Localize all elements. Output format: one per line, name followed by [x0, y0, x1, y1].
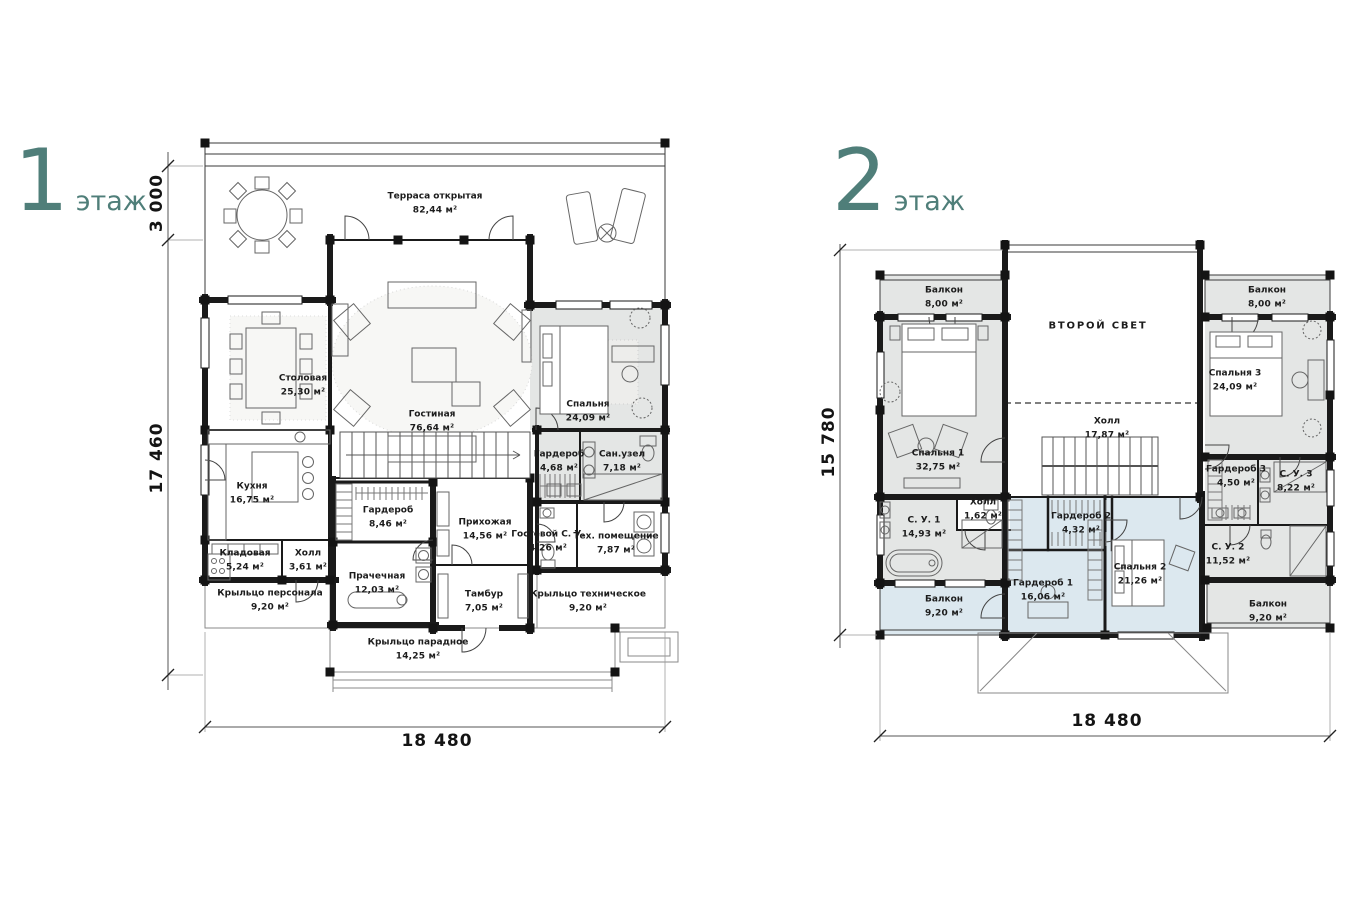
room-name: Балкон [1248, 285, 1286, 299]
room-label-wardrobe2: Гардероб 24,32 м² [1051, 511, 1111, 538]
room-label-vestibule: Тамбур7,05 м² [465, 589, 503, 616]
room-area: 7,18 м² [599, 462, 645, 476]
f2-porch-roof [978, 633, 1228, 693]
f2-stairs [1042, 437, 1158, 495]
room-label-bathroom1: С. У. 114,93 м² [902, 515, 947, 542]
f1-dim-terrace-depth: 3 000 [147, 174, 167, 232]
room-label-hall-main: Холл17,87 м² [1085, 416, 1130, 443]
room-area: 7,87 м² [573, 544, 658, 558]
room-label-balcony-br: Балкон9,20 м² [1249, 599, 1287, 626]
room-name: Спальня 1 [912, 448, 965, 462]
room-area: 4,32 м² [1051, 524, 1111, 538]
room-label-bedroom2: Спальня 221,26 м² [1114, 562, 1167, 589]
floorplan-drawing [0, 0, 1360, 900]
room-area: 16,75 м² [230, 494, 275, 508]
room-area: 12,03 м² [349, 584, 406, 598]
room-label-laundry: Прачечная12,03 м² [349, 571, 406, 598]
room-area: 76,64 м² [409, 422, 456, 436]
floorplan-sheet: 1 этаж 2 этаж 3 000 17 460 18 480 15 780… [0, 0, 1360, 900]
f1-dim-width: 18 480 [401, 731, 472, 751]
room-area: 16,06 м² [1013, 591, 1073, 605]
f2-dim-width: 18 480 [1071, 711, 1142, 731]
room-area: 14,93 м² [902, 528, 947, 542]
room-label-terrace: Терраса открытая82,44 м² [388, 191, 483, 218]
room-name: Гардероб 2 [1051, 511, 1111, 525]
room-label-wardrobe1: Гардероб 116,06 м² [1013, 578, 1073, 605]
room-label-bathroom2: С. У. 211,52 м² [1206, 542, 1251, 569]
room-name: Спальня 3 [1209, 368, 1262, 382]
room-name: Балкон [925, 594, 963, 608]
room-label-wardrobe-main: Гардероб8,46 м² [363, 505, 414, 532]
room-area: 32,75 м² [912, 461, 965, 475]
room-area: 8,46 м² [363, 518, 414, 532]
room-label-bedroom3: Спальня 324,09 м² [1209, 368, 1262, 395]
room-name: Балкон [1249, 599, 1287, 613]
room-name: Прихожая [458, 517, 511, 531]
room-area: 14,25 м² [368, 650, 469, 664]
room-label-bedroom: Спальня24,09 м² [566, 399, 611, 426]
room-label-second-light: ВТОРОЙ СВЕТ [1048, 319, 1147, 334]
room-area: 4,68 м² [534, 462, 585, 476]
floor1-suffix: этаж [76, 188, 147, 215]
room-label-tech-porch: Крыльцо техническое9,20 м² [530, 589, 646, 616]
room-name: Терраса открытая [388, 191, 483, 205]
room-label-living: Гостиная76,64 м² [409, 409, 456, 436]
room-name: Гостиная [409, 409, 456, 423]
room-name: Спальня 2 [1114, 562, 1167, 576]
room-label-wardrobe-small: Гардероб4,68 м² [534, 449, 585, 476]
room-label-pantry: Кладовая5,24 м² [219, 548, 270, 575]
room-area: 8,22 м² [1277, 482, 1315, 496]
room-area: 25,30 м² [279, 386, 327, 400]
room-name: Тамбур [465, 589, 503, 603]
room-area: 14,56 м² [458, 530, 511, 544]
room-name: Гардероб 1 [1013, 578, 1073, 592]
f1-dim-height: 17 460 [147, 422, 167, 493]
floor2-number: 2 [832, 148, 887, 215]
room-label-main-porch: Крыльцо парадное14,25 м² [368, 637, 469, 664]
room-name: Гардероб [363, 505, 414, 519]
room-area: 82,44 м² [388, 204, 483, 218]
floor2-title: 2 этаж [832, 148, 965, 215]
room-area: 1,62 м² [964, 510, 1002, 524]
room-area: 8,00 м² [1248, 298, 1286, 312]
room-area: 11,52 м² [1206, 555, 1251, 569]
f1-terrace-edges [205, 143, 665, 302]
room-label-entry: Прихожая14,56 м² [458, 517, 511, 544]
room-area: 9,20 м² [1249, 612, 1287, 626]
room-label-wardrobe3: Гардероб 34,50 м² [1206, 464, 1266, 491]
room-label-hall: Холл3,61 м² [289, 548, 327, 575]
room-label-bedroom1: Спальня 132,75 м² [912, 448, 965, 475]
room-name: Кладовая [219, 548, 270, 562]
room-label-hall-small: Холл1,62 м² [964, 497, 1002, 524]
room-label-staff-porch: Крыльцо персонала9,20 м² [217, 588, 322, 615]
room-area: 24,09 м² [1209, 381, 1262, 395]
room-area: 3,61 м² [289, 561, 327, 575]
f1-stairs [340, 432, 530, 478]
room-name: Столовая [279, 373, 327, 387]
room-name: Холл [964, 497, 1002, 511]
room-area: 5,24 м² [219, 561, 270, 575]
room-name: Крыльцо парадное [368, 637, 469, 651]
room-name: Спальня [566, 399, 611, 413]
room-area: 9,20 м² [530, 602, 646, 616]
room-area: 17,87 м² [1085, 429, 1130, 443]
room-label-balcony-tr: Балкон8,00 м² [1248, 285, 1286, 312]
room-label-balcony-tl: Балкон8,00 м² [925, 285, 963, 312]
room-name: Тех. помещение [573, 531, 658, 545]
room-area: 4,50 м² [1206, 477, 1266, 491]
room-name: Сан.узел [599, 449, 645, 463]
room-name: Холл [1085, 416, 1130, 430]
room-label-dining: Столовая25,30 м² [279, 373, 327, 400]
room-name: С. У. 3 [1277, 469, 1315, 483]
room-name: ВТОРОЙ СВЕТ [1048, 319, 1147, 334]
room-name: Гардероб [534, 449, 585, 463]
room-label-tech-room: Тех. помещение7,87 м² [573, 531, 658, 558]
room-label-kitchen: Кухня16,75 м² [230, 481, 275, 508]
f2-dim-height: 15 780 [819, 406, 839, 477]
room-name: С. У. 1 [902, 515, 947, 529]
room-label-bathroom3: С. У. 38,22 м² [1277, 469, 1315, 496]
room-name: Холл [289, 548, 327, 562]
room-area: 7,05 м² [465, 602, 503, 616]
room-area: 24,09 м² [566, 412, 611, 426]
floor1-number: 1 [14, 148, 69, 215]
room-area: 21,26 м² [1114, 575, 1167, 589]
room-name: Балкон [925, 285, 963, 299]
room-name: Гардероб 3 [1206, 464, 1266, 478]
room-name: Кухня [230, 481, 275, 495]
room-name: С. У. 2 [1206, 542, 1251, 556]
room-area: 9,20 м² [925, 607, 963, 621]
room-label-bathroom: Сан.узел7,18 м² [599, 449, 645, 476]
floor1-title: 1 этаж [14, 148, 147, 215]
room-name: Крыльцо техническое [530, 589, 646, 603]
room-name: Крыльцо персонала [217, 588, 322, 602]
room-label-balcony-bl: Балкон9,20 м² [925, 594, 963, 621]
room-area: 8,00 м² [925, 298, 963, 312]
floor2-plan [834, 241, 1336, 743]
room-area: 9,20 м² [217, 601, 322, 615]
floor2-suffix: этаж [894, 188, 965, 215]
room-name: Прачечная [349, 571, 406, 585]
